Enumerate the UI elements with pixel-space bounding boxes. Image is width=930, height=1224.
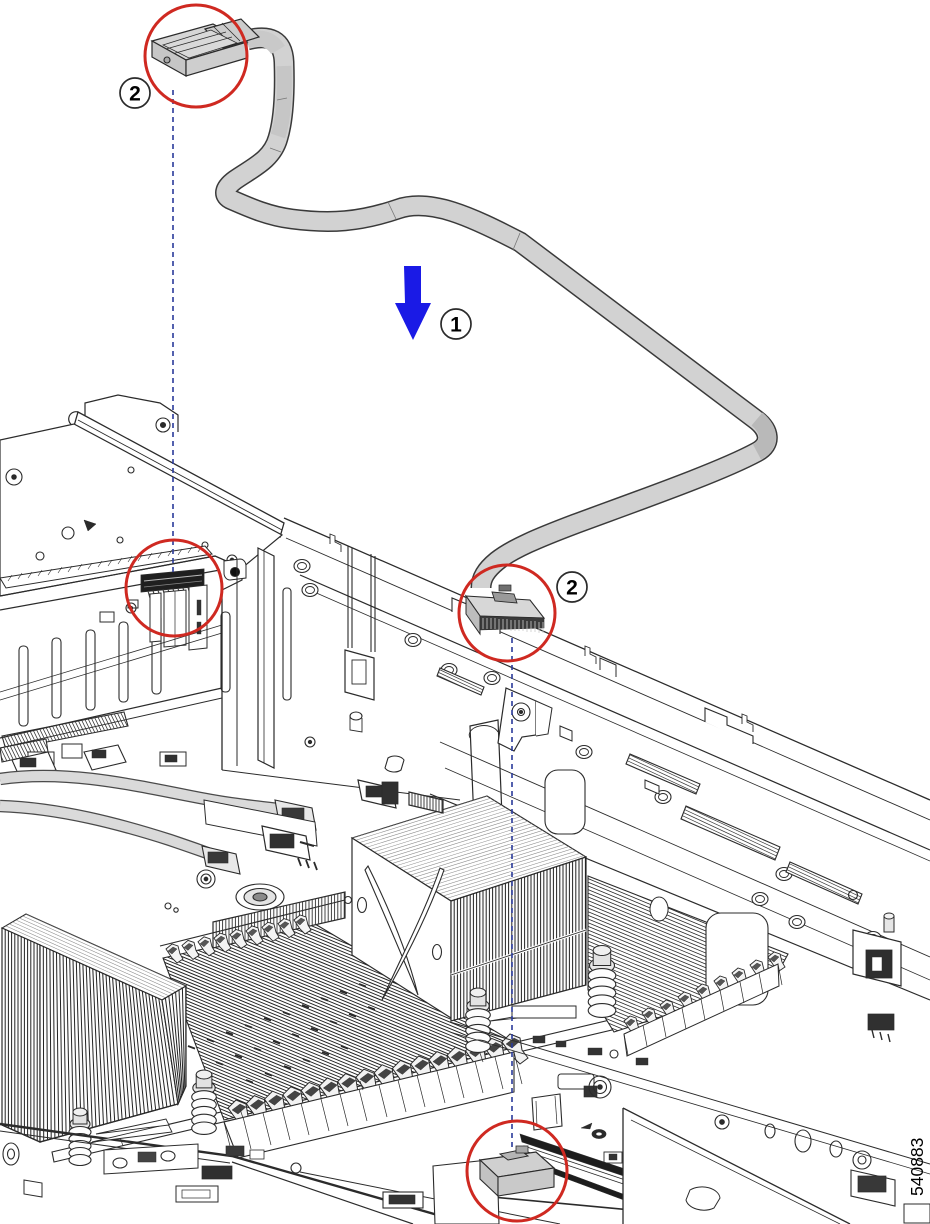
svg-text:1: 1 xyxy=(450,314,462,337)
svg-text:2: 2 xyxy=(566,577,578,600)
svg-text:2: 2 xyxy=(129,83,141,106)
svg-text:540883: 540883 xyxy=(907,1138,927,1196)
